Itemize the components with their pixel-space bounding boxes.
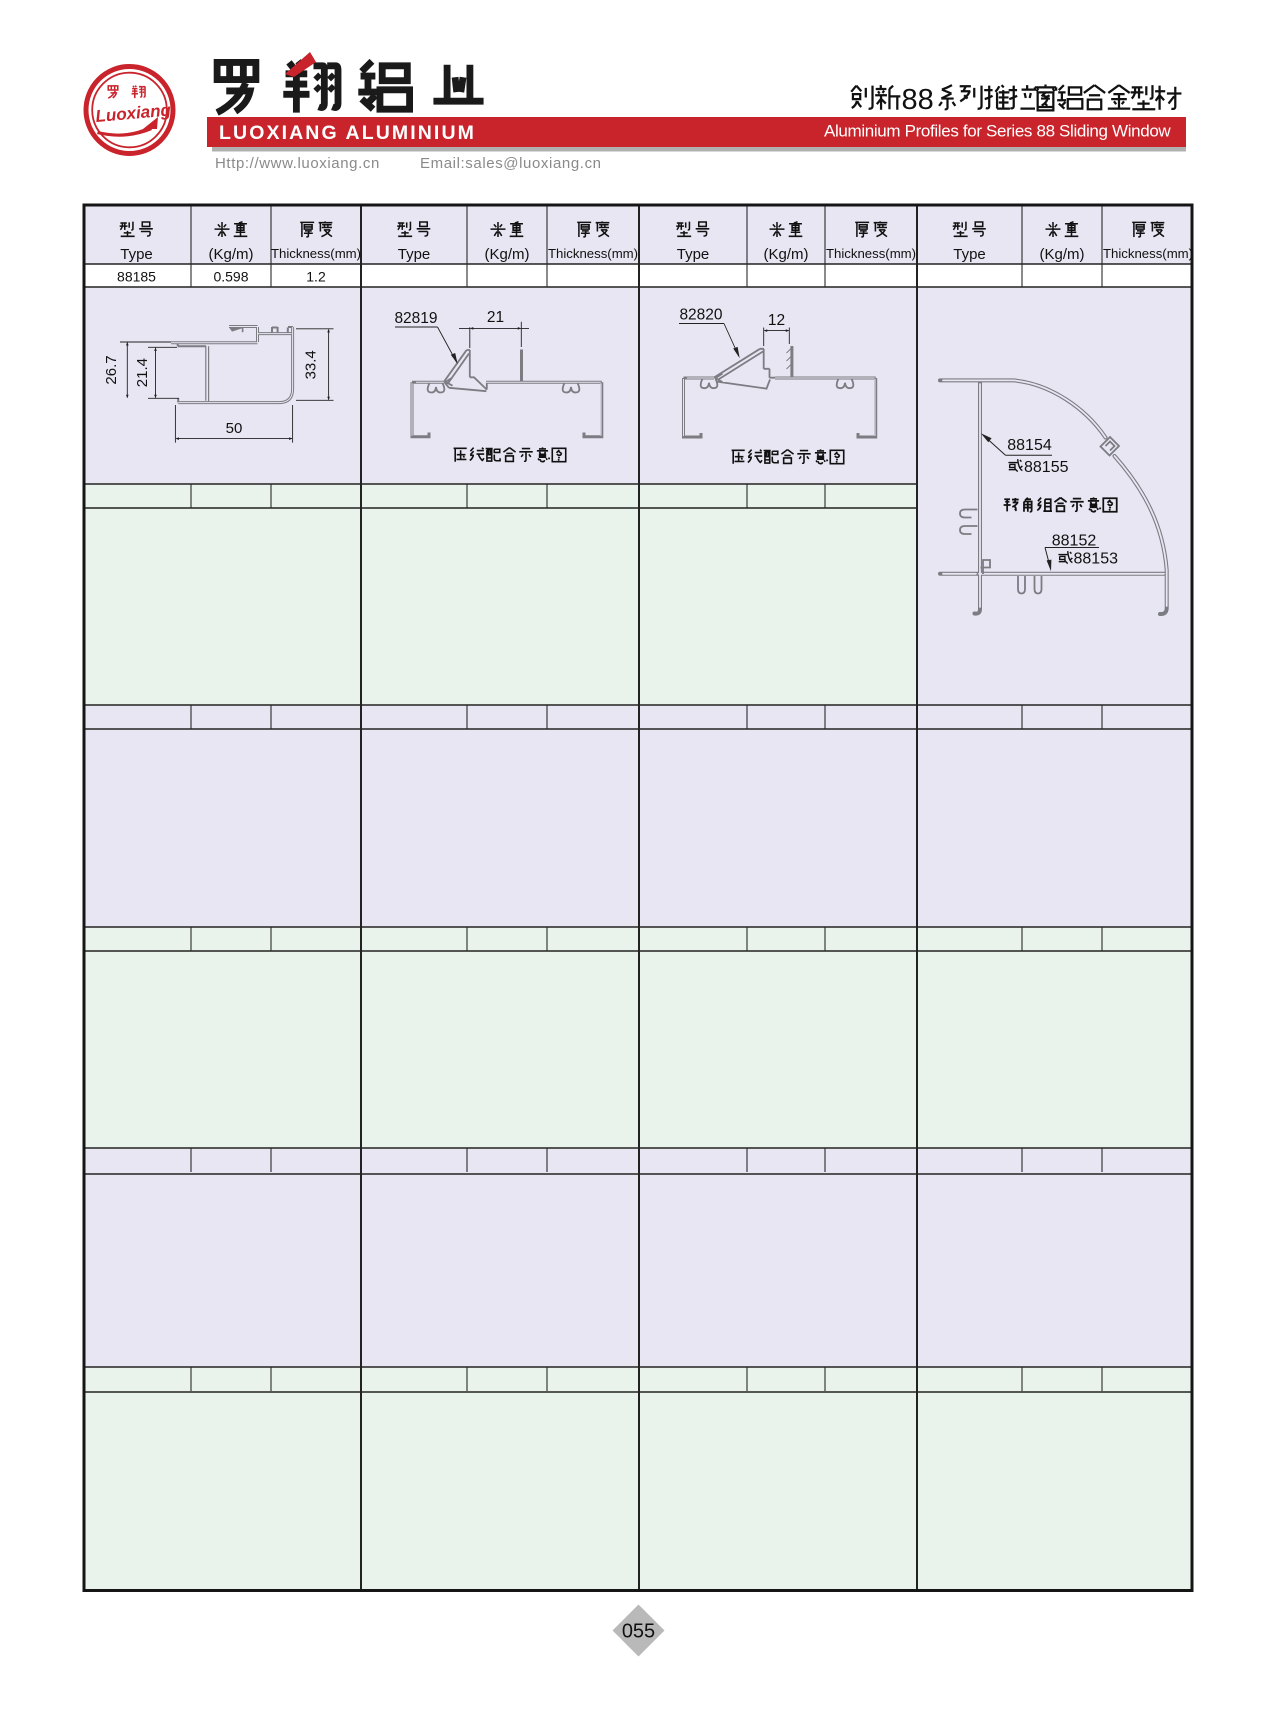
svg-text:Thickness(mm): Thickness(mm) [271, 246, 361, 261]
svg-text:12: 12 [768, 312, 785, 329]
svg-text:Type: Type [677, 246, 710, 263]
svg-text:(Kg/m): (Kg/m) [485, 246, 530, 263]
svg-text:82819: 82819 [394, 310, 437, 327]
svg-text:88185: 88185 [117, 269, 156, 285]
svg-text:Email:sales@luoxiang.cn: Email:sales@luoxiang.cn [420, 155, 602, 172]
svg-text:88153: 88153 [1074, 550, 1119, 567]
svg-text:33.4: 33.4 [303, 350, 320, 379]
svg-text:Type: Type [953, 246, 986, 263]
svg-text:88155: 88155 [1024, 459, 1069, 476]
svg-text:1.2: 1.2 [306, 269, 326, 285]
svg-text:Type: Type [398, 246, 431, 263]
svg-text:0.598: 0.598 [213, 269, 248, 285]
svg-text:Aluminium Profiles for Series: Aluminium Profiles for Series 88 Sliding… [824, 122, 1171, 141]
svg-text:21.4: 21.4 [134, 358, 151, 387]
svg-text:(Kg/m): (Kg/m) [1040, 246, 1085, 263]
svg-text:Thickness(mm): Thickness(mm) [1103, 246, 1193, 261]
svg-text:88154: 88154 [1007, 437, 1052, 454]
svg-text:(Kg/m): (Kg/m) [209, 246, 254, 263]
svg-text:(Kg/m): (Kg/m) [764, 246, 809, 263]
svg-text:88: 88 [902, 84, 934, 116]
svg-text:26.7: 26.7 [103, 355, 120, 384]
svg-text:Thickness(mm): Thickness(mm) [548, 246, 638, 261]
svg-text:055: 055 [622, 1621, 655, 1643]
svg-text:Http://www.luoxiang.cn: Http://www.luoxiang.cn [215, 155, 380, 172]
svg-text:Type: Type [120, 246, 153, 263]
svg-text:21: 21 [487, 309, 504, 326]
svg-text:Thickness(mm): Thickness(mm) [826, 246, 916, 261]
svg-text:50: 50 [226, 420, 243, 437]
svg-text:LUOXIANG ALUMINIUM: LUOXIANG ALUMINIUM [219, 122, 476, 144]
svg-text:88152: 88152 [1052, 532, 1097, 549]
svg-text:82820: 82820 [679, 307, 722, 324]
